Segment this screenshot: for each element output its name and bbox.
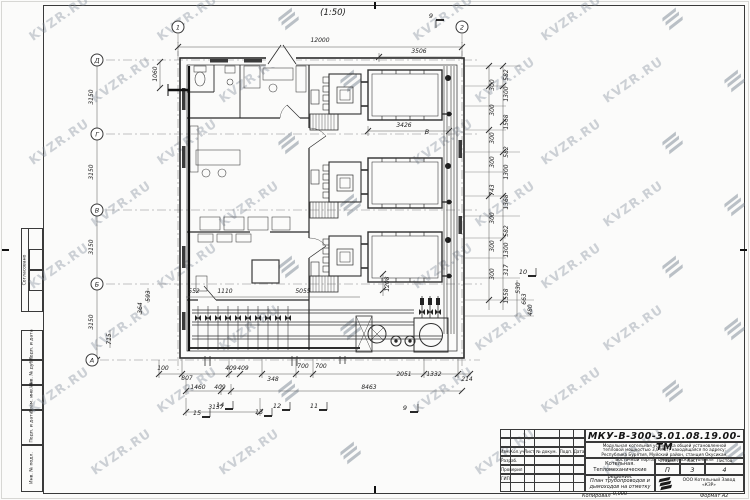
col-koluch: Кол.уч	[510, 450, 524, 455]
dimension-label: 3426	[396, 123, 411, 129]
dimension-label: 348	[267, 377, 278, 383]
section-marker-label: 14	[216, 402, 224, 409]
dimension-label: 300	[490, 156, 496, 167]
dimension-label: 1460	[190, 385, 205, 391]
list-value: 3	[680, 466, 705, 474]
dimension-label: 582	[504, 69, 510, 80]
dimension-label: 1110	[217, 289, 232, 295]
dimension-label: 1332	[426, 372, 441, 378]
dimension-label: 593	[146, 290, 152, 301]
stage-value: П	[655, 466, 680, 474]
dimension-label: 743	[490, 184, 496, 195]
dimension-label: 700	[315, 364, 326, 370]
dimension-label: 3150	[89, 239, 95, 254]
dimension-label: 582	[504, 146, 510, 157]
axis-bubble-b: Б	[91, 278, 104, 291]
dimension-label: 530	[516, 282, 522, 293]
col-dokum: № докум.	[534, 450, 559, 455]
section-marker-label: 11	[310, 403, 318, 410]
dimension-label: 1060	[153, 66, 159, 81]
dimension-label: 214	[461, 377, 472, 383]
dimension-label: 409	[237, 366, 248, 372]
dimension-label: 5055	[295, 289, 310, 295]
section-marker-label: 15	[193, 410, 201, 417]
axis-bubble-1: 1	[172, 21, 185, 34]
row-proveril: Проверил	[501, 468, 531, 473]
section-marker-label: 12	[273, 403, 281, 410]
dimension-label: 100	[157, 366, 168, 372]
dimension-label: 1300	[504, 242, 510, 257]
section-marker-label: 9	[429, 13, 433, 20]
company-name: ООО Котельный Завод «КЗР»	[674, 479, 744, 489]
dimension-label: 3506	[411, 49, 426, 55]
axis-bubble-a: А	[86, 354, 99, 367]
dimension-label: 480	[528, 304, 534, 315]
col-data: Дата	[573, 450, 585, 455]
lists-value: 4	[705, 466, 744, 474]
dimension-label: 300	[490, 104, 496, 115]
dimension-label: 552	[188, 289, 199, 295]
dimension-label: 2051	[396, 372, 411, 378]
kzr-logo-icon	[659, 476, 673, 491]
dimension-label: 12000	[310, 38, 329, 44]
dimension-label: 300	[490, 79, 496, 90]
dimension-label: 300	[490, 132, 496, 143]
col-list: Лист	[524, 450, 534, 455]
axis-bubble-d: Д	[91, 54, 104, 67]
scale-note: (1:50)	[303, 8, 363, 18]
dimension-label: 3150	[89, 164, 95, 179]
row-razrab: Разраб.	[501, 459, 531, 464]
dimension-label: 1300	[504, 86, 510, 101]
col-podp: Подп.	[559, 450, 573, 455]
dimension-label: 1558	[504, 288, 510, 303]
col-izm: Изм.	[500, 450, 510, 455]
dimension-label: 663	[522, 293, 528, 304]
section-marker-label: 10	[519, 269, 527, 276]
format-label: Формат А2	[700, 493, 728, 499]
dimension-label: 409	[225, 366, 236, 372]
dimension-label: 8463	[361, 385, 376, 391]
company-cell: ООО Котельный Завод «КЗР»	[660, 477, 744, 490]
dimension-label: 409	[214, 385, 225, 391]
section-marker-label: 9	[403, 405, 407, 412]
dimension-label: 582	[504, 225, 510, 236]
dimension-label: 300	[490, 268, 496, 279]
dimension-label: 3150	[89, 89, 95, 104]
axis-bubble-g: Г	[91, 128, 104, 141]
dimension-label: 300	[490, 240, 496, 251]
dimension-labels-layer: 1200035063426106055211105055120831503150…	[0, 0, 750, 500]
dimension-label: 1368	[504, 194, 510, 209]
dimension-label: 1300	[504, 164, 510, 179]
dimension-label: 317	[504, 264, 510, 275]
dimension-label: 300	[490, 212, 496, 223]
dimension-label: 700	[297, 364, 308, 370]
dimension-label: 1208	[385, 276, 391, 291]
dimension-label: 3150	[89, 314, 95, 329]
section-marker-label: В	[425, 129, 429, 136]
copied-label: Копировал	[582, 493, 611, 499]
dimension-label: 1568	[504, 114, 510, 129]
dimension-label: 807	[181, 376, 192, 382]
section-marker-label: 13	[255, 409, 263, 416]
drawing-sheet: { "sheet": { "scale_note": "(1:50)", "co…	[0, 0, 750, 500]
dimension-label: 715	[107, 333, 113, 344]
axis-bubble-2: 2	[456, 21, 469, 34]
dimension-label: 364	[138, 302, 144, 313]
row-gip: ГИП	[501, 477, 531, 482]
axis-bubble-v: В	[91, 204, 104, 217]
